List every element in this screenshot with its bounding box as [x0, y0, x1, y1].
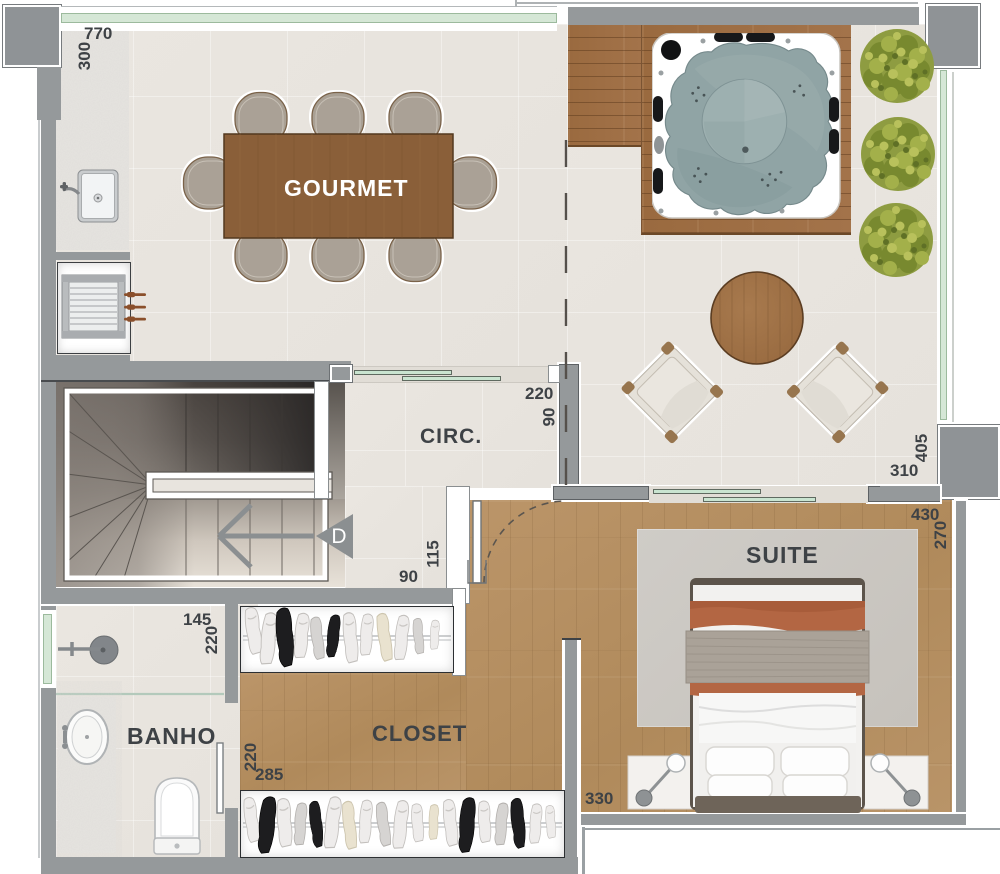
- svg-text:D: D: [331, 525, 346, 548]
